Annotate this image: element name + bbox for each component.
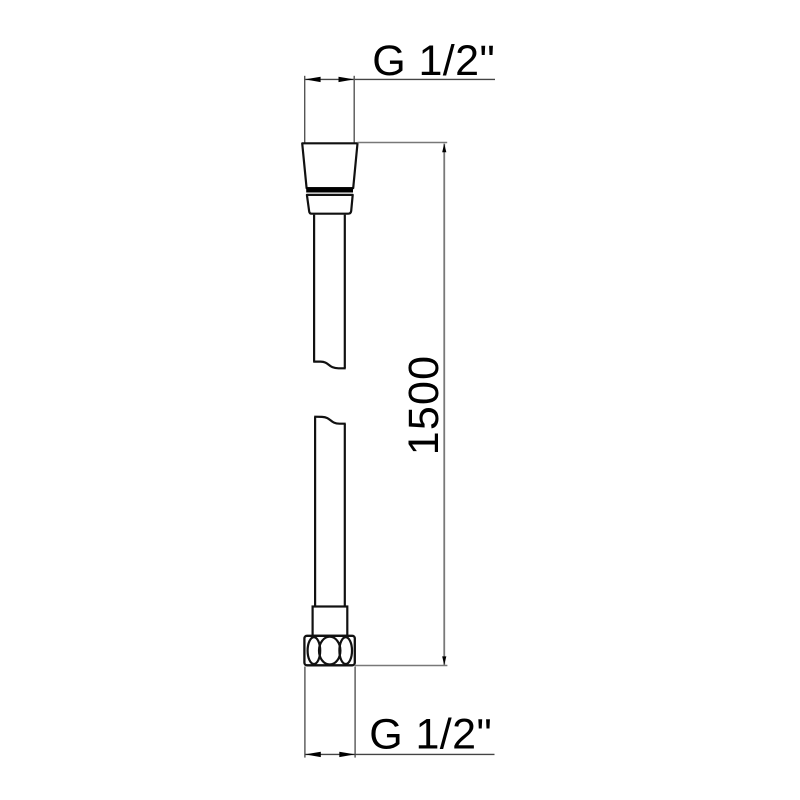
svg-text:G 1/2": G 1/2" (369, 711, 492, 759)
svg-text:1500: 1500 (400, 355, 448, 455)
svg-text:G 1/2": G 1/2" (372, 37, 495, 85)
